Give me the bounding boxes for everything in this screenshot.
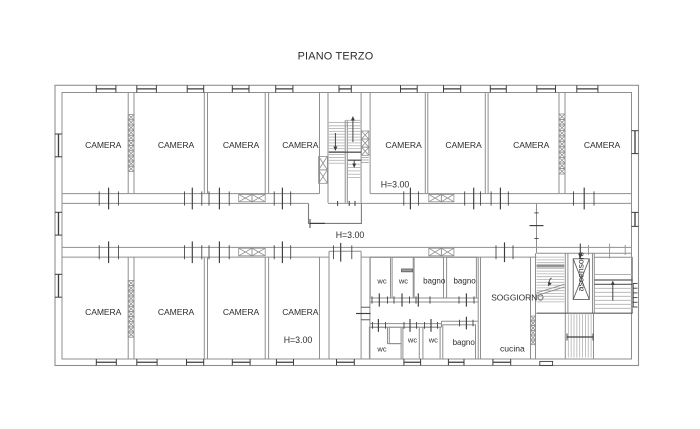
svg-text:SOGGIORNO: SOGGIORNO bbox=[491, 293, 544, 303]
svg-text:wc: wc bbox=[407, 336, 417, 345]
svg-text:H=3.00: H=3.00 bbox=[381, 180, 410, 190]
svg-text:H=3.00: H=3.00 bbox=[336, 230, 365, 240]
svg-text:H=3.00: H=3.00 bbox=[284, 335, 313, 345]
svg-text:PIANO TERZO: PIANO TERZO bbox=[298, 50, 374, 62]
svg-text:CAMERA: CAMERA bbox=[385, 140, 422, 150]
svg-text:CAMERA: CAMERA bbox=[584, 140, 621, 150]
svg-text:bagno: bagno bbox=[453, 338, 476, 347]
svg-text:bagno: bagno bbox=[423, 276, 446, 285]
svg-text:wc: wc bbox=[398, 276, 408, 285]
svg-text:CAMERA: CAMERA bbox=[282, 307, 319, 317]
svg-text:CAMERA: CAMERA bbox=[223, 307, 260, 317]
svg-text:CAMERA: CAMERA bbox=[158, 307, 195, 317]
svg-text:wc: wc bbox=[376, 276, 386, 285]
svg-text:wc: wc bbox=[428, 336, 438, 345]
svg-text:CAMERA: CAMERA bbox=[282, 140, 319, 150]
svg-text:CAMERA: CAMERA bbox=[445, 140, 482, 150]
svg-text:wc: wc bbox=[376, 345, 386, 354]
svg-text:CAMERA: CAMERA bbox=[158, 140, 195, 150]
svg-text:CAMERA: CAMERA bbox=[513, 140, 550, 150]
svg-text:bagno: bagno bbox=[453, 276, 476, 285]
svg-text:CAMERA: CAMERA bbox=[85, 307, 122, 317]
svg-text:CAMERA: CAMERA bbox=[85, 140, 122, 150]
svg-text:CAMERA: CAMERA bbox=[223, 140, 260, 150]
svg-text:cucina: cucina bbox=[500, 344, 525, 354]
